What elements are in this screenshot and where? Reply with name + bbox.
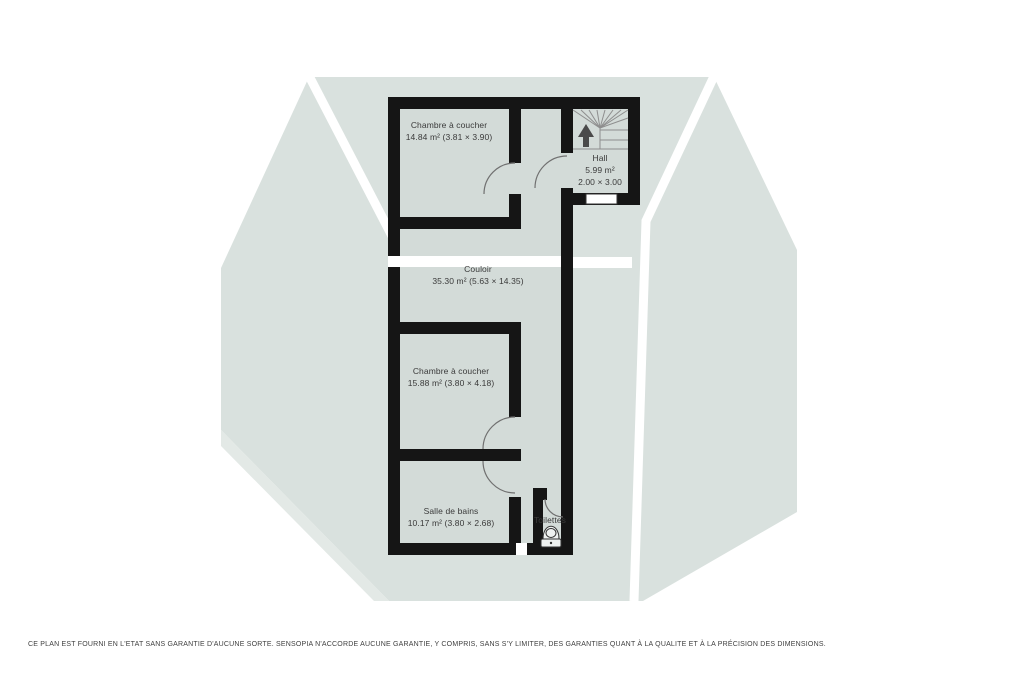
floorplan-drawing xyxy=(0,0,1024,683)
room-area: 35.30 m² (5.63 × 14.35) xyxy=(432,275,523,287)
room-area: 15.88 m² (3.80 × 4.18) xyxy=(408,377,495,389)
room-area: 10.17 m² (3.80 × 2.68) xyxy=(408,517,495,529)
floorplan-canvas: Chambre à coucher 14.84 m² (3.81 × 3.90)… xyxy=(0,0,1024,683)
window-hall xyxy=(586,194,617,204)
room-name: Chambre à coucher xyxy=(408,365,495,377)
wall-gap-bottom xyxy=(516,543,527,555)
room-label-bedroom1: Chambre à coucher 14.84 m² (3.81 × 3.90) xyxy=(406,119,493,143)
room-name: Toilettes xyxy=(534,514,566,526)
room-dimensions: 2.00 × 3.00 xyxy=(578,176,622,188)
room-area: 5.99 m² xyxy=(578,164,622,176)
room-label-bathroom: Salle de bains 10.17 m² (3.80 × 2.68) xyxy=(408,505,495,529)
room-name: Couloir xyxy=(432,263,523,275)
room-name: Chambre à coucher xyxy=(406,119,493,131)
room-label-hall: Hall 5.99 m² 2.00 × 3.00 xyxy=(578,152,622,188)
room-area: 14.84 m² (3.81 × 3.90) xyxy=(406,131,493,143)
room-label-corridor: Couloir 35.30 m² (5.63 × 14.35) xyxy=(432,263,523,287)
room-label-bedroom2: Chambre à coucher 15.88 m² (3.80 × 4.18) xyxy=(408,365,495,389)
room-name: Hall xyxy=(578,152,622,164)
disclaimer-text: CE PLAN EST FOURNI EN L'ETAT SANS GARANT… xyxy=(28,641,826,648)
room-label-toilets: Toilettes xyxy=(534,514,566,526)
room-name: Salle de bains xyxy=(408,505,495,517)
roofline-cut-exterior xyxy=(573,257,632,268)
